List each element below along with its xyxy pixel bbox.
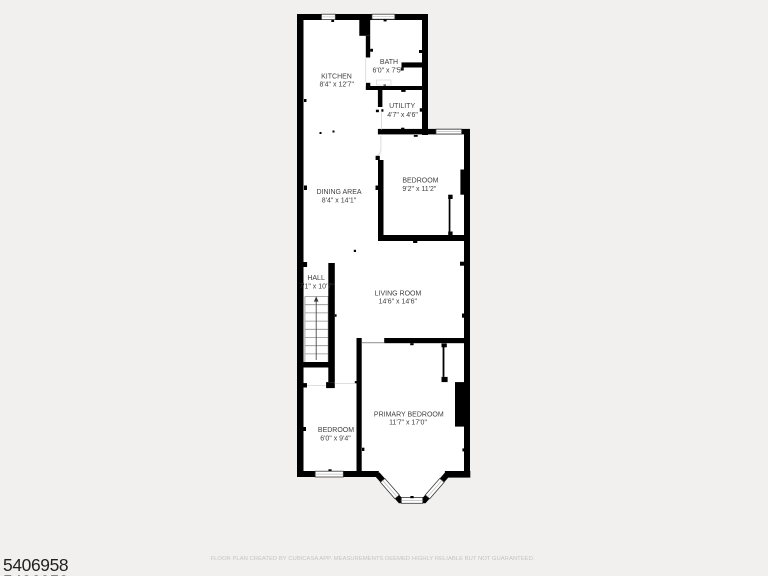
svg-text:5406958: 5406958 [3, 571, 68, 576]
svg-text:6'0" x 9'4": 6'0" x 9'4" [320, 435, 351, 442]
svg-text:11'7" x 17'0": 11'7" x 17'0" [389, 420, 427, 427]
svg-text:6'0" x 7'5": 6'0" x 7'5" [372, 68, 403, 75]
svg-text:BEDROOM: BEDROOM [318, 427, 354, 434]
svg-text:HALL: HALL [307, 275, 325, 282]
svg-text:UTILITY: UTILITY [389, 103, 415, 110]
svg-text:BEDROOM: BEDROOM [402, 178, 438, 185]
svg-text:14'6" x 14'6": 14'6" x 14'6" [379, 299, 418, 306]
svg-text:DINING AREA: DINING AREA [316, 189, 361, 196]
svg-text:7'1" x 10'7": 7'1" x 10'7" [299, 283, 334, 290]
svg-text:LIVING ROOM: LIVING ROOM [375, 290, 422, 297]
svg-text:FLOOR PLAN CREATED BY CUBICASA: FLOOR PLAN CREATED BY CUBICASA APP. MEAS… [211, 556, 535, 562]
svg-text:8'4" x 12'7": 8'4" x 12'7" [319, 82, 354, 89]
svg-text:BATH: BATH [380, 59, 398, 66]
svg-text:9'2" x 11'2": 9'2" x 11'2" [402, 186, 436, 193]
svg-text:PRIMARY BEDROOM: PRIMARY BEDROOM [374, 411, 444, 418]
svg-text:8'4" x 14'1": 8'4" x 14'1" [322, 198, 357, 205]
svg-text:KITCHEN: KITCHEN [321, 73, 352, 80]
svg-text:4'7" x 4'6": 4'7" x 4'6" [387, 112, 418, 119]
